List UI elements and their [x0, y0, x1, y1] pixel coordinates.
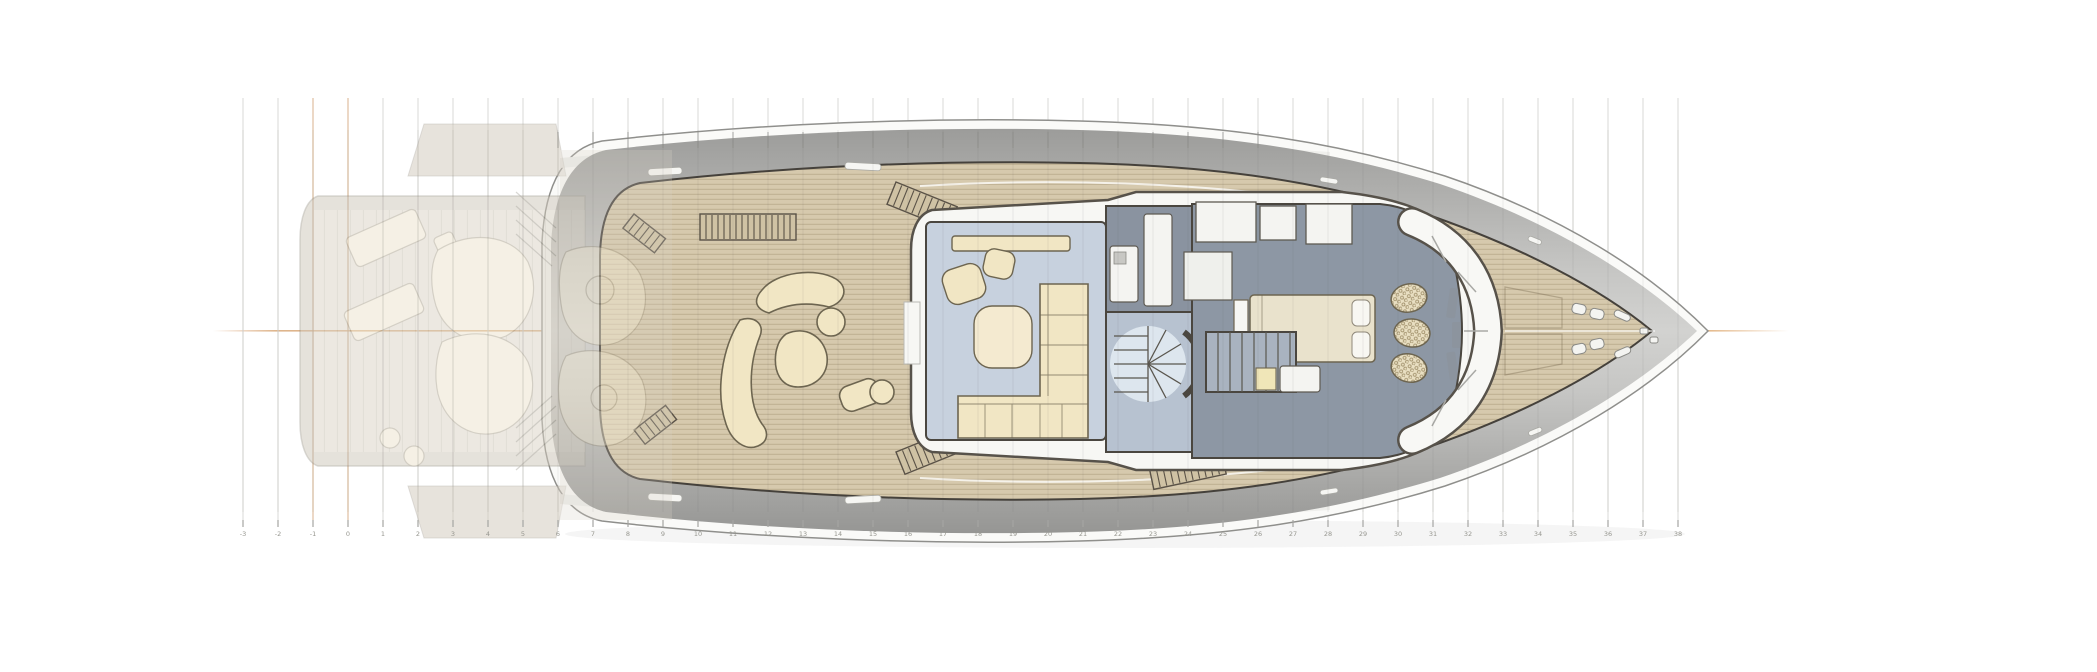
station-tick-label: 33 [1499, 530, 1507, 538]
station-tick-label: 12 [764, 530, 772, 538]
galley [1106, 206, 1192, 312]
ghost-wing-top [408, 124, 566, 176]
station-tick-label: 24 [1184, 530, 1192, 538]
round-pouf [817, 308, 845, 336]
station-tick-label: 15 [869, 530, 877, 538]
station-tick-label: 17 [939, 530, 947, 538]
station-tick-label: 3 [451, 530, 455, 538]
station-tick-label: 5 [521, 530, 525, 538]
station-tick-label: 38 [1674, 530, 1682, 538]
station-tick-label: 30 [1394, 530, 1402, 538]
station-tick-label: 25 [1219, 530, 1227, 538]
station-tick-label: 20 [1044, 530, 1052, 538]
galley-cabinet [1144, 214, 1172, 306]
wardrobe-1 [1196, 202, 1256, 242]
station-tick-label: 10 [694, 530, 702, 538]
station-tick-label: 7 [591, 530, 595, 538]
ensuite [1256, 366, 1320, 392]
side-table [870, 380, 894, 404]
vanity-desk [1184, 252, 1232, 300]
station-tick-label: 1 [381, 530, 385, 538]
station-tick-label: 2 [416, 530, 420, 538]
station-tick-label: 37 [1639, 530, 1647, 538]
station-tick-label: 27 [1289, 530, 1297, 538]
station-tick-label: -2 [275, 530, 281, 538]
ghost-table-1 [586, 276, 614, 304]
station-tick-label: 19 [1009, 530, 1017, 538]
station-tick-label: 8 [626, 530, 630, 538]
station-tick-label: 34 [1534, 530, 1542, 538]
station-tick-label: 0 [346, 530, 350, 538]
main-hull [542, 120, 1708, 542]
station-tick-label: -3 [240, 530, 246, 538]
salon-aft-door [904, 302, 920, 364]
salon [926, 222, 1106, 440]
salon-sideboard [952, 236, 1070, 251]
station-tick-label: 36 [1604, 530, 1612, 538]
wardrobe-2 [1260, 206, 1296, 240]
station-tick-label: 18 [974, 530, 982, 538]
ghost-round-2 [404, 446, 424, 466]
station-tick-label: 13 [799, 530, 807, 538]
station-tick-label: 31 [1429, 530, 1437, 538]
station-tick-label: 35 [1569, 530, 1577, 538]
wicker-poufs [1388, 281, 1431, 386]
station-tick-label: 23 [1149, 530, 1157, 538]
station-tick-label: 22 [1114, 530, 1122, 538]
station-tick-label: 4 [486, 530, 490, 538]
station-tick-label: 26 [1254, 530, 1262, 538]
ghost-aft-platform [300, 124, 672, 538]
salon-coffee-table [974, 306, 1032, 368]
superstructure [904, 192, 1492, 470]
station-tick-label: 6 [556, 530, 560, 538]
station-tick-label: 14 [834, 530, 842, 538]
ghost-sofa-1 [432, 238, 534, 341]
station-tick-label: 16 [904, 530, 912, 538]
station-tick-label: 32 [1464, 530, 1472, 538]
station-tick-label: 11 [729, 530, 737, 538]
ghost-table-2 [591, 385, 617, 411]
aft-stairs-grating [700, 214, 796, 240]
cabinet-tv [1306, 204, 1352, 244]
station-tick-label: 28 [1324, 530, 1332, 538]
yacht-deck-plan: -3-2-10123456789101112131415161718192021… [0, 0, 2097, 672]
galley-appliance [1114, 252, 1126, 264]
organic-pouf [775, 331, 827, 387]
station-tick-label: 9 [661, 530, 665, 538]
station-tick-label: 21 [1079, 530, 1087, 538]
station-tick-label: -1 [310, 530, 316, 538]
station-tick-label: 29 [1359, 530, 1367, 538]
